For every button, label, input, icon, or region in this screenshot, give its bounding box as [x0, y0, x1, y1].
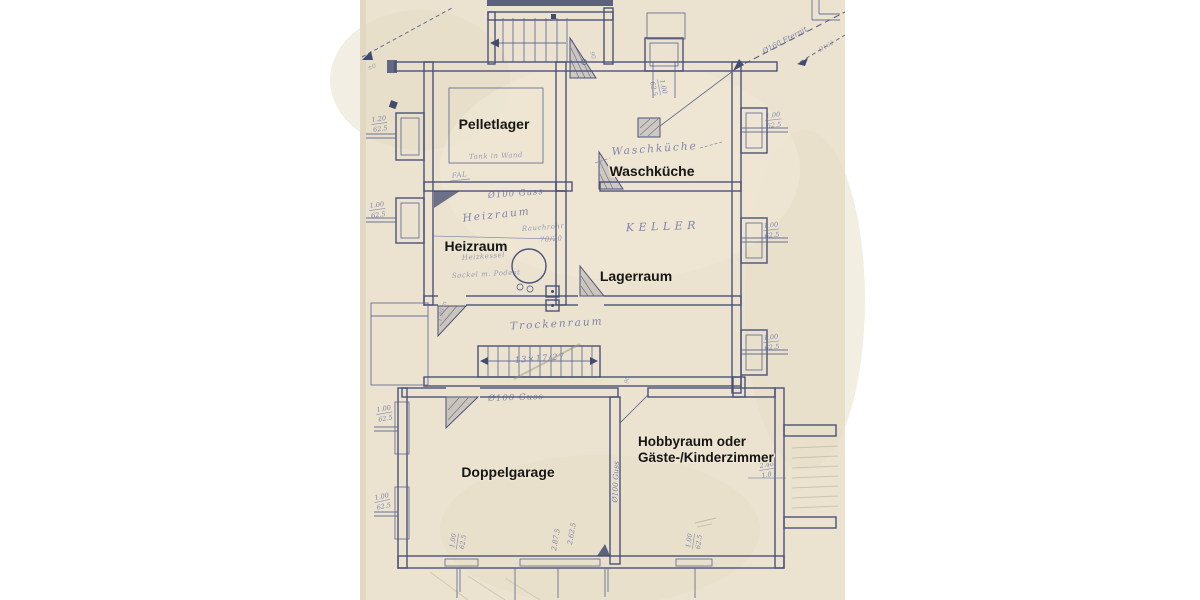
room-label-doppelgarage: Doppelgarage [461, 464, 555, 480]
floor-plan-svg: Ø160 Eternit Ø160 ±0 90 [0, 0, 1200, 600]
fal-note: FAL [450, 170, 467, 180]
garage-door-gap [446, 387, 480, 398]
svg-text:1.00: 1.00 [765, 111, 780, 120]
room-label-pelletlager: Pelletlager [459, 116, 530, 132]
room-label-lagerraum: Lagerraum [600, 268, 672, 284]
svg-text:62.5: 62.5 [764, 230, 779, 239]
room-label-hobbyraum-line1: Hobbyraum oder [638, 434, 747, 449]
stair-steps [503, 18, 567, 62]
svg-text:62.5: 62.5 [764, 342, 779, 351]
top-cut-structure [487, 0, 613, 6]
svg-text:1.00: 1.00 [763, 333, 778, 342]
room-label-hobbyraum-line2: Gäste-/Kinderzimmer [638, 450, 775, 465]
svg-text:62.5: 62.5 [766, 120, 781, 129]
svg-text:1.00: 1.00 [763, 221, 778, 230]
room-label-waschkueche: Waschküche [609, 163, 694, 179]
hand-keller: KELLER [625, 219, 701, 235]
stair-dot [551, 14, 556, 19]
wall-top-left-cap [387, 60, 397, 73]
hand-guss-garage-wall: Ø100 Guss [610, 461, 620, 504]
door-gap-keller [578, 295, 604, 306]
screenshot-canvas: { "page": { "background": "#ffffff", "pa… [0, 0, 1200, 600]
